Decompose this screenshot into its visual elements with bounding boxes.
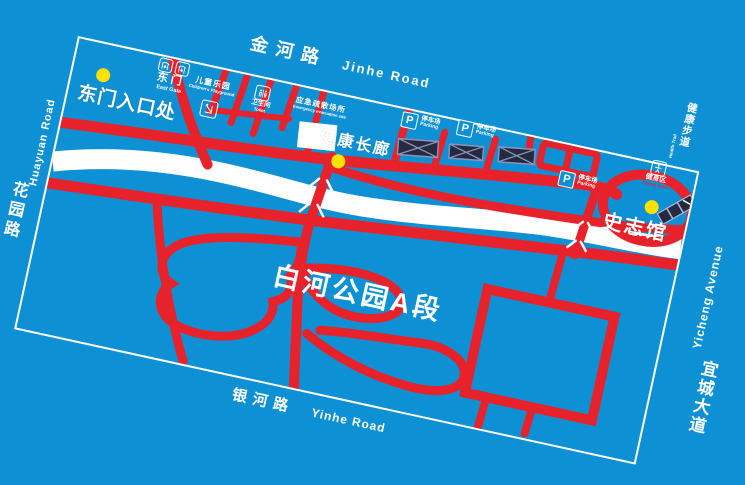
road-yinhe-en: Yinhe Road	[310, 406, 387, 436]
road-jinhe-cn: 金河路	[248, 33, 328, 69]
parking-icon: P	[456, 119, 475, 138]
parking-icon: P	[557, 170, 576, 189]
parking-icon: P	[400, 111, 419, 130]
road-yicheng-cn: 宜城大道	[682, 357, 723, 437]
road-yicheng-en: Yicheng Avenue	[690, 244, 726, 351]
road-huayuan-cn: 花园路	[0, 178, 32, 242]
road-yinhe-cn: 银河路	[230, 386, 295, 416]
park-map-canvas: 东门入口处 东门 East Gate 儿童乐园 Children's Playg…	[0, 0, 745, 485]
playground-slide-icon	[199, 99, 219, 119]
road-jinhe-en: Jinhe Road	[341, 57, 432, 91]
health-trail-label: 健康步道	[676, 101, 700, 149]
park-map-panel: 东门入口处 东门 East Gate 儿童乐园 Children's Playg…	[14, 36, 699, 465]
